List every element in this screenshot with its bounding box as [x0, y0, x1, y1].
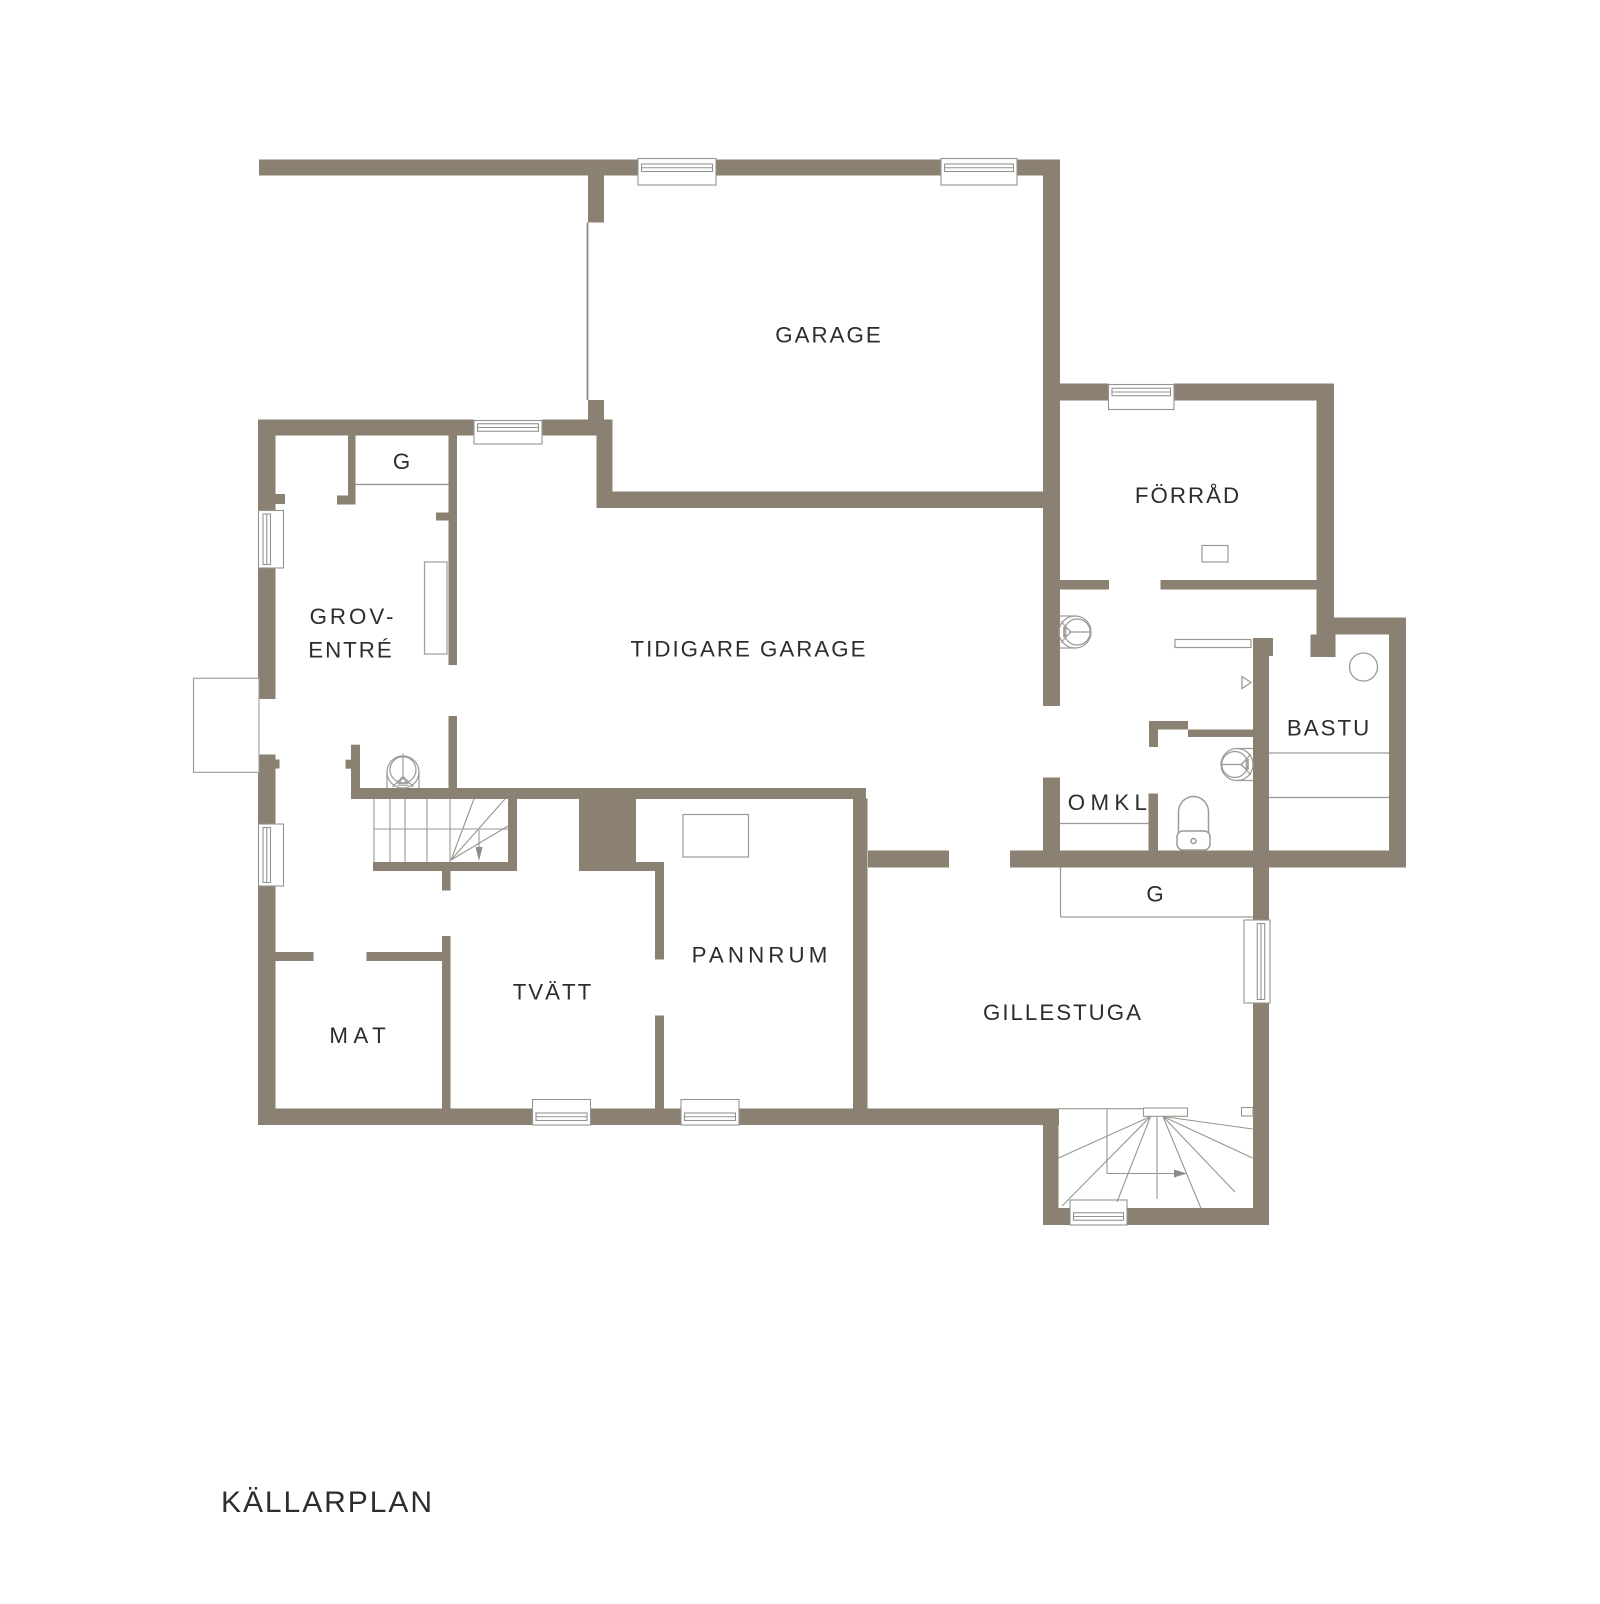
svg-text:ENTRÉ: ENTRÉ — [308, 638, 394, 663]
svg-text:GROV-: GROV- — [310, 604, 397, 629]
svg-text:TIDIGARE GARAGE: TIDIGARE GARAGE — [631, 637, 868, 662]
svg-text:G: G — [1146, 882, 1165, 907]
svg-text:BASTU: BASTU — [1287, 716, 1371, 741]
svg-text:TVÄTT: TVÄTT — [513, 980, 594, 1005]
svg-text:PANNRUM: PANNRUM — [692, 943, 832, 968]
svg-text:GILLESTUGA: GILLESTUGA — [983, 1000, 1143, 1025]
svg-text:MAT: MAT — [329, 1023, 391, 1048]
svg-text:KÄLLARPLAN: KÄLLARPLAN — [221, 1486, 434, 1519]
svg-text:G: G — [393, 449, 412, 474]
svg-text:OMKL: OMKL — [1068, 790, 1152, 815]
svg-text:FÖRRÅD: FÖRRÅD — [1135, 483, 1241, 508]
svg-text:GARAGE: GARAGE — [775, 323, 882, 348]
